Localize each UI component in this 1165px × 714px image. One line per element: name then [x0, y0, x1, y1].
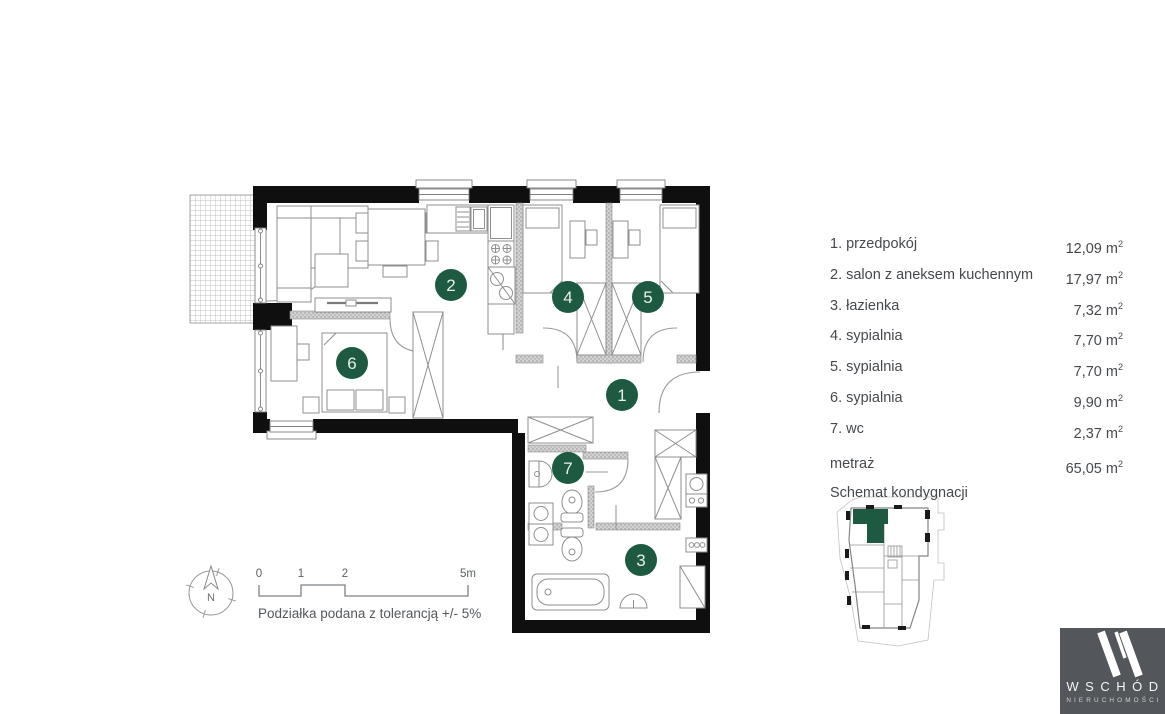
developer-logo: WSCHÓD NIERUCHOMOŚCI — [1060, 628, 1165, 714]
room-number-5: 5 — [643, 288, 652, 307]
legend-room-label: 2. salon z aneksem kuchennym — [830, 262, 1033, 293]
compass-north: N — [178, 560, 244, 626]
schematic-title: Schemat kondygnacji — [830, 480, 1123, 506]
room-legend: 1. przedpokój 12,09 m2 2. salon z anekse… — [830, 231, 1123, 506]
floorplan-page: 1 2 3 4 5 6 7 N 0 1 2 5m Podziałka podan… — [0, 0, 1165, 714]
scale-tick-5m: 5m — [460, 568, 476, 580]
room-number-6: 6 — [347, 354, 356, 373]
scale-tick-2: 2 — [342, 568, 348, 580]
total-area-label: metraż — [830, 451, 874, 482]
legend-row: 7. wc 2,37 m2 — [830, 416, 1123, 447]
legend-room-label: 3. łazienka — [830, 293, 899, 324]
logo-w-icon — [1060, 630, 1165, 678]
legend-room-label: 7. wc — [830, 416, 864, 447]
scale-tick-0: 0 — [256, 568, 262, 580]
logo-name: WSCHÓD — [1066, 679, 1164, 694]
logo-subtitle: NIERUCHOMOŚCI — [1066, 697, 1161, 704]
legend-row: 2. salon z aneksem kuchennym 17,97 m2 — [830, 262, 1123, 293]
room-number-3: 3 — [636, 551, 645, 570]
bedroom-5-furniture — [612, 205, 699, 355]
balcony — [190, 195, 256, 323]
living-room-furniture — [277, 206, 438, 312]
room-number-4: 4 — [563, 288, 572, 307]
floor-schematic — [837, 497, 944, 646]
legend-room-label: 6. sypialnia — [830, 385, 903, 416]
bedroom-4-furniture — [523, 205, 606, 355]
compass-n-label: N — [207, 592, 215, 604]
legend-row: 4. sypialnia 7,70 m2 — [830, 323, 1123, 354]
scale-tolerance-note: Podziałka podana z tolerancją +/- 5% — [258, 606, 481, 621]
legend-room-label: 1. przedpokój — [830, 231, 917, 262]
legend-room-label: 5. sypialnia — [830, 354, 903, 385]
room-number-7: 7 — [563, 459, 572, 478]
legend-total-row: metraż 65,05 m2 — [830, 451, 1123, 482]
legend-row: 5. sypialnia 7,70 m2 — [830, 354, 1123, 385]
scale-bar: 0 1 2 5m Podziałka podana z tolerancją +… — [256, 568, 481, 621]
legend-room-label: 4. sypialnia — [830, 323, 903, 354]
legend-row: 3. łazienka 7,32 m2 — [830, 293, 1123, 324]
legend-row: 6. sypialnia 9,90 m2 — [830, 385, 1123, 416]
scale-tick-1: 1 — [298, 568, 304, 580]
room-number-2: 2 — [446, 276, 455, 295]
room-number-1: 1 — [617, 386, 626, 405]
legend-row: 1. przedpokój 12,09 m2 — [830, 231, 1123, 262]
